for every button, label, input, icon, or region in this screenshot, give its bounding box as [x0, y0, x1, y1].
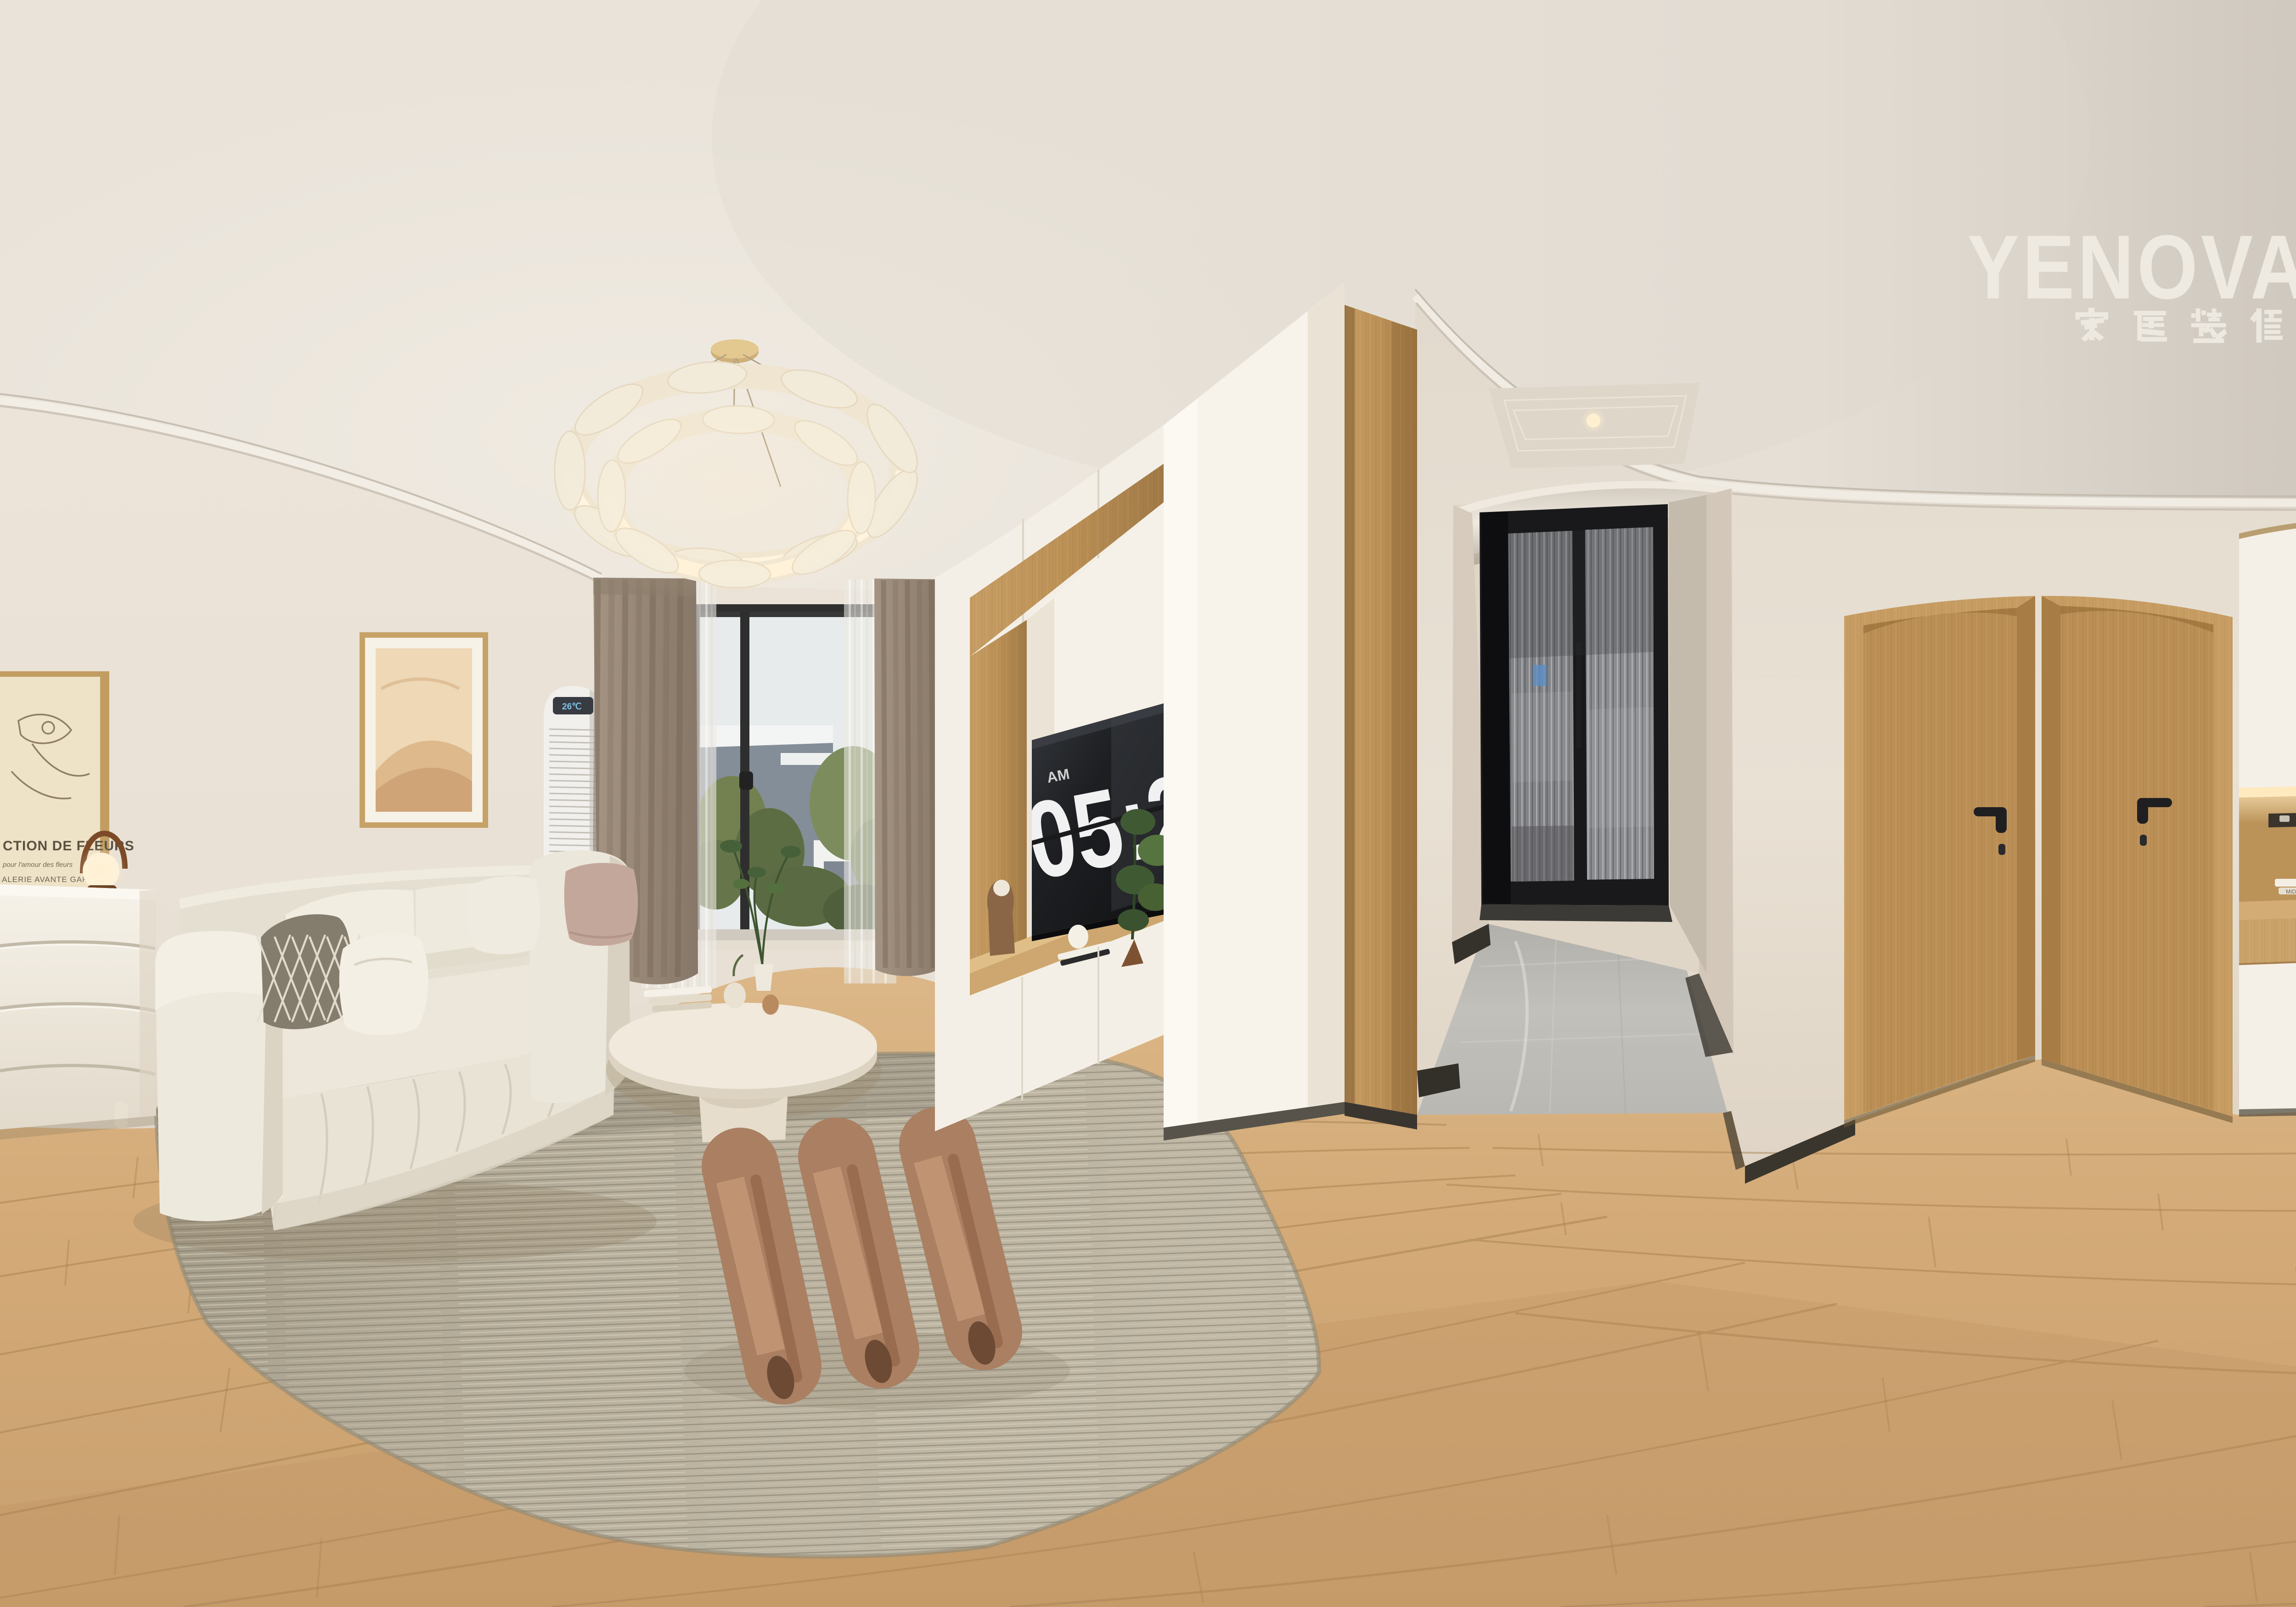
svg-text:pour l'amour des fleurs: pour l'amour des fleurs — [2, 861, 73, 869]
svg-text:26℃: 26℃ — [562, 702, 581, 712]
svg-text:MIDDLEMARCH: MIDDLEMARCH — [2286, 888, 2296, 895]
svg-text:YENOVA: YENOVA — [1967, 216, 2296, 318]
